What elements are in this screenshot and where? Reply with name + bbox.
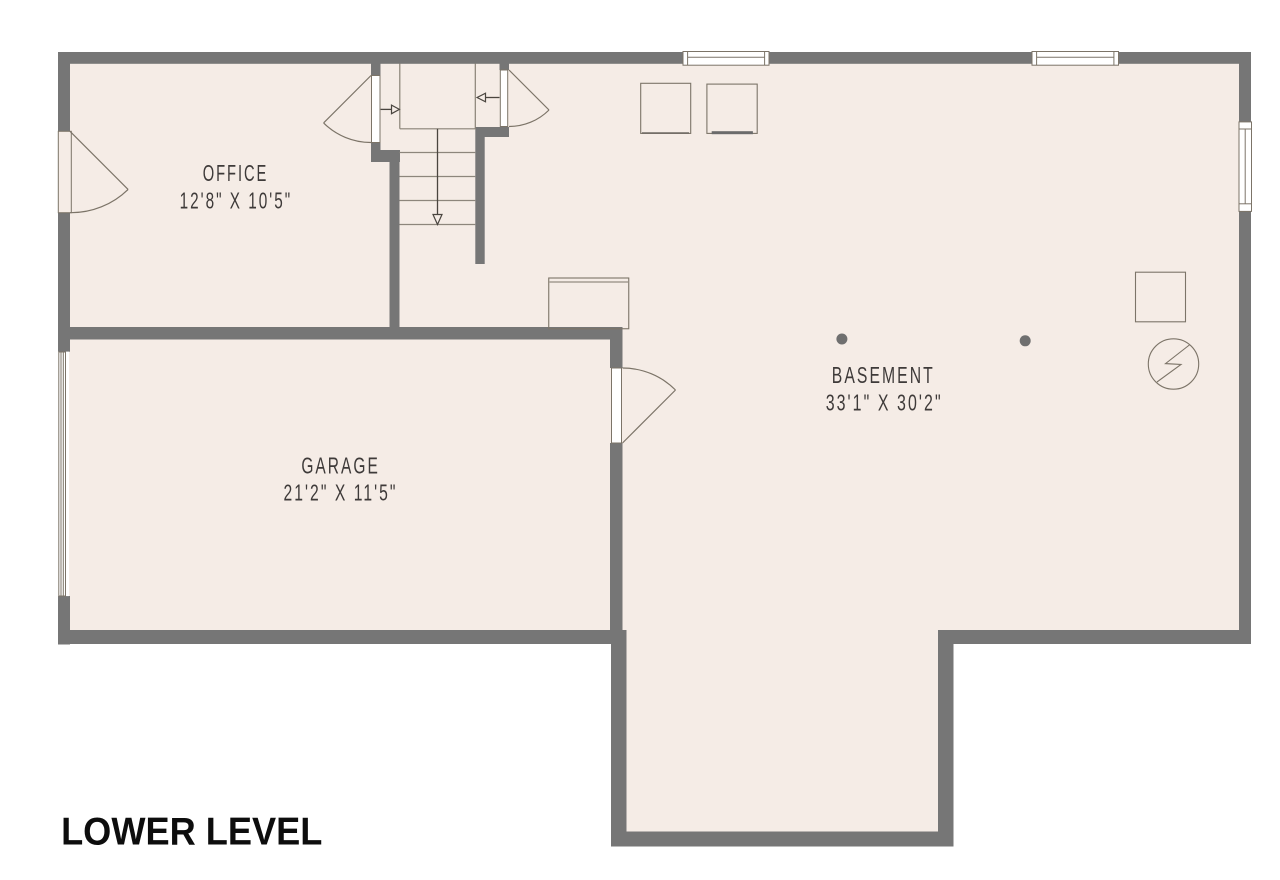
svg-text:12'8" X 10'5": 12'8" X 10'5" — [180, 188, 293, 214]
svg-text:GARAGE: GARAGE — [301, 453, 380, 479]
svg-text:OFFICE: OFFICE — [203, 160, 269, 186]
svg-text:33'1" X 30'2": 33'1" X 30'2" — [826, 390, 943, 416]
svg-text:LOWER LEVEL: LOWER LEVEL — [61, 810, 322, 853]
svg-text:BASEMENT: BASEMENT — [832, 362, 935, 388]
svg-text:21'2" X 11'5": 21'2" X 11'5" — [284, 479, 398, 505]
